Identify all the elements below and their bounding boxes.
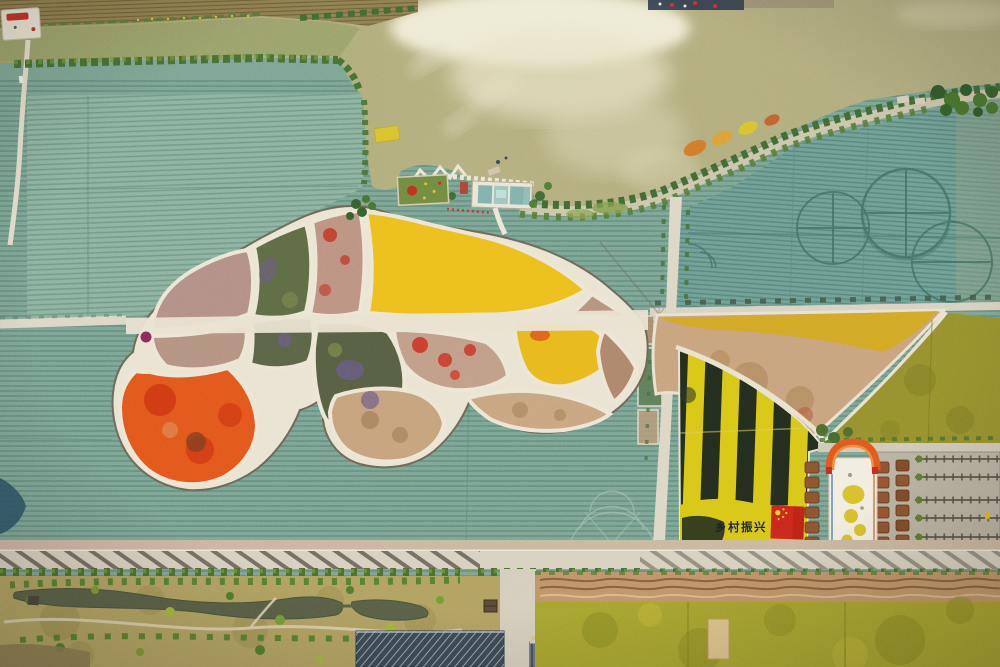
aerial-photo: 乡村振兴 bbox=[0, 0, 1000, 667]
scene-canvas: 乡村振兴 bbox=[0, 0, 1000, 667]
vignette bbox=[0, 0, 1000, 667]
